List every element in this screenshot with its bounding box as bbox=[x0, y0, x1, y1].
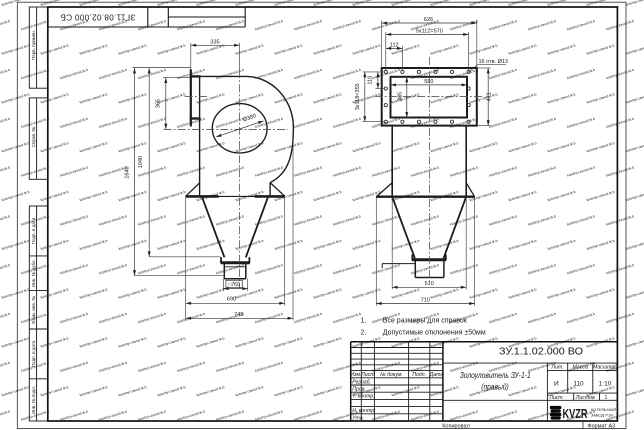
svg-text:Подп. и дата: Подп. и дата bbox=[31, 217, 36, 244]
svg-text:710: 710 bbox=[421, 297, 430, 303]
svg-text:1:10: 1:10 bbox=[599, 381, 612, 388]
svg-text:Н. контр.: Н. контр. bbox=[352, 408, 375, 414]
svg-text:110: 110 bbox=[573, 381, 584, 388]
svg-text:471: 471 bbox=[487, 92, 493, 101]
svg-text:Пров.: Пров. bbox=[352, 387, 366, 393]
svg-text:690: 690 bbox=[227, 297, 236, 303]
svg-text:Подп. и дата: Подп. и дата bbox=[31, 340, 36, 367]
svg-text:510: 510 bbox=[425, 281, 434, 287]
svg-text:№ докум.: № докум. bbox=[380, 372, 403, 378]
svg-text:Масштаб: Масштаб bbox=[593, 364, 618, 370]
svg-text:Все размеры для справок: Все размеры для справок bbox=[383, 317, 468, 324]
svg-text:Утв.: Утв. bbox=[352, 415, 364, 421]
svg-text:3x118=355: 3x118=355 bbox=[355, 83, 361, 110]
svg-text:Инв. № подл.: Инв. № подл. bbox=[31, 386, 36, 414]
svg-text:Лист: Лист bbox=[360, 372, 375, 378]
svg-text:ЗГ11.08.02.000 СБ: ЗГ11.08.02.000 СБ bbox=[60, 13, 135, 22]
svg-text:626: 626 bbox=[424, 17, 433, 23]
svg-text:112: 112 bbox=[390, 43, 399, 49]
svg-text:Листов: Листов bbox=[575, 395, 595, 401]
svg-text:365: 365 bbox=[156, 99, 162, 108]
svg-text:16 отв. Ø13: 16 отв. Ø13 bbox=[479, 59, 508, 65]
svg-text:5x112=570: 5x112=570 bbox=[416, 29, 443, 35]
svg-text:2.: 2. bbox=[361, 330, 367, 337]
svg-text:Т. контр.: Т. контр. bbox=[352, 394, 374, 400]
svg-text:И: И bbox=[554, 381, 559, 388]
svg-text:□760: □760 bbox=[228, 282, 240, 288]
svg-text:Лит.: Лит. bbox=[550, 364, 563, 370]
svg-text:(правый): (правый) bbox=[481, 383, 509, 392]
svg-text:КОТЕЛЬНЫЙ: КОТЕЛЬНЫЙ bbox=[591, 407, 616, 412]
svg-text:ЗАВОД РЭУ: ЗАВОД РЭУ bbox=[591, 413, 614, 418]
svg-text:1040: 1040 bbox=[138, 156, 144, 168]
svg-text:Дата: Дата bbox=[429, 372, 444, 378]
svg-text:ЗУ.1.1.02.000 ВО: ЗУ.1.1.02.000 ВО bbox=[499, 347, 583, 358]
svg-text:Копировал: Копировал bbox=[442, 423, 470, 429]
svg-text:Взам. инв. №: Взам. инв. № bbox=[31, 296, 36, 324]
svg-text:Лист: Лист bbox=[548, 395, 563, 401]
svg-text:1: 1 bbox=[605, 395, 608, 401]
svg-text:Формат А3: Формат А3 bbox=[587, 423, 615, 429]
svg-text:118: 118 bbox=[367, 76, 373, 85]
svg-text:KVZR: KVZR bbox=[563, 406, 588, 421]
svg-text:Изм.: Изм. bbox=[350, 372, 361, 378]
svg-text:1.: 1. bbox=[361, 317, 367, 324]
svg-text:Подп.: Подп. bbox=[412, 372, 426, 378]
svg-text:Перв. примен.: Перв. примен. bbox=[31, 30, 36, 60]
svg-text:335: 335 bbox=[210, 39, 219, 45]
svg-text:Инв. № дубл.: Инв. № дубл. bbox=[31, 259, 36, 287]
svg-text:Допустимые отклонения ±50мм: Допустимые отклонения ±50мм bbox=[383, 330, 486, 337]
svg-text:745: 745 bbox=[234, 312, 243, 318]
svg-text:580: 580 bbox=[424, 79, 433, 85]
svg-text:Золоуловитель ЗУ-1-1: Золоуловитель ЗУ-1-1 bbox=[460, 371, 531, 380]
svg-text:Разраб.: Разраб. bbox=[352, 379, 371, 385]
svg-text:1640: 1640 bbox=[125, 166, 131, 178]
svg-text:Справ. №: Справ. № bbox=[31, 127, 36, 148]
svg-text:385: 385 bbox=[398, 92, 404, 101]
svg-text:Масса: Масса bbox=[573, 364, 588, 370]
